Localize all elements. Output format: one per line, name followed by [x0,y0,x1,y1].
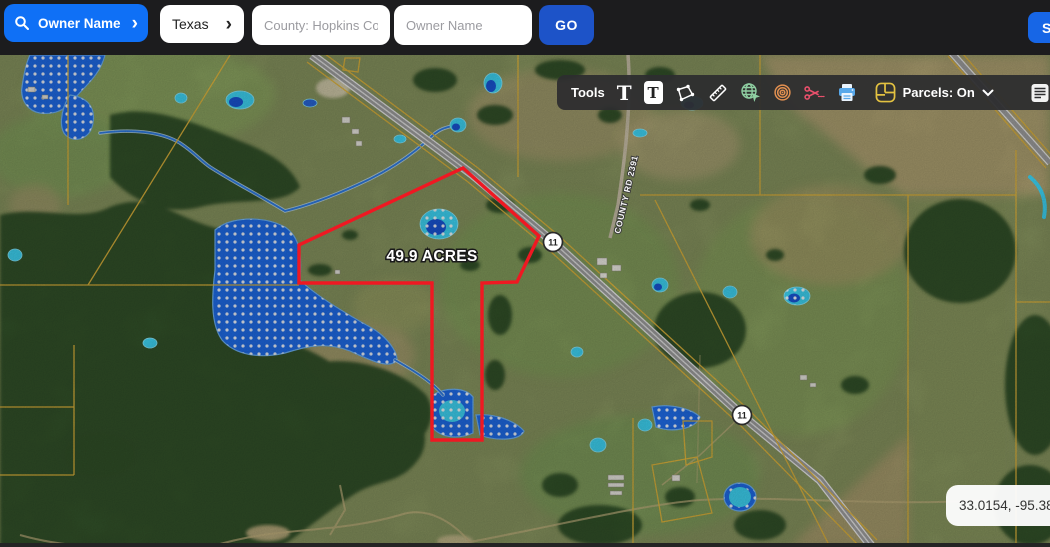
satellite-map[interactable]: 49.9 ACRES COUNTY RD 2391 11 11 [0,55,1050,547]
parcels-toggle[interactable]: Parcels: On [869,81,1000,104]
parcels-grid-icon [875,82,896,103]
parcels-toggle-label: Parcels: On [903,85,975,100]
web-map-tool-button[interactable] [740,81,761,105]
owner-name-input[interactable] [394,5,532,45]
go-button[interactable]: GO [539,5,594,45]
buffer-tool-button[interactable] [773,81,792,105]
grain-overlay [0,55,1050,547]
text-tool-button[interactable]: T [617,81,632,105]
printer-icon [837,83,857,102]
coordinates-readout: 33.0154, -95.3849 [946,485,1050,526]
highway-shield: 11 [733,406,752,425]
map-toolbar: Tools T T [557,75,1050,110]
bottom-edge-bar [0,543,1050,547]
map-canvas[interactable]: 49.9 ACRES COUNTY RD 2391 11 11 Tools T … [0,55,1050,547]
acreage-label: 49.9 ACRES [386,248,477,265]
search-button-label: Owner Name [38,16,121,31]
polygon-tool-button[interactable] [675,81,696,105]
chevron-right-icon: › [132,14,138,33]
top-bar: Owner Name › Texas › GO S [0,0,1050,55]
edge-partial-button[interactable]: S [1028,12,1050,43]
text-box-icon: T [644,81,663,104]
chevron-down-icon [982,89,994,97]
scissors-icon [804,85,825,101]
county-input[interactable] [252,5,390,45]
report-doc-icon [1030,83,1050,103]
tools-label: Tools [571,85,605,100]
text-box-tool-button[interactable]: T [644,81,663,105]
reports-button[interactable]: Reports [1024,82,1050,104]
state-select[interactable]: Texas › [160,5,244,43]
search-icon [14,15,30,31]
ruler-icon [708,83,728,103]
polygon-icon [675,84,696,102]
measure-tool-button[interactable] [708,81,728,105]
concentric-rings-icon [773,83,792,102]
print-tool-button[interactable] [837,81,857,105]
text-icon: T [617,83,632,103]
svg-text:11: 11 [737,411,747,421]
owner-name-search-button[interactable]: Owner Name › [4,4,148,42]
highway-shield: 11 [544,233,563,252]
chevron-right-icon: › [226,15,232,34]
svg-text:11: 11 [548,238,558,248]
state-select-value: Texas [172,16,209,32]
app-window: Owner Name › Texas › GO S [0,0,1050,547]
globe-cursor-icon [740,82,761,103]
cut-tool-button[interactable] [804,81,825,105]
